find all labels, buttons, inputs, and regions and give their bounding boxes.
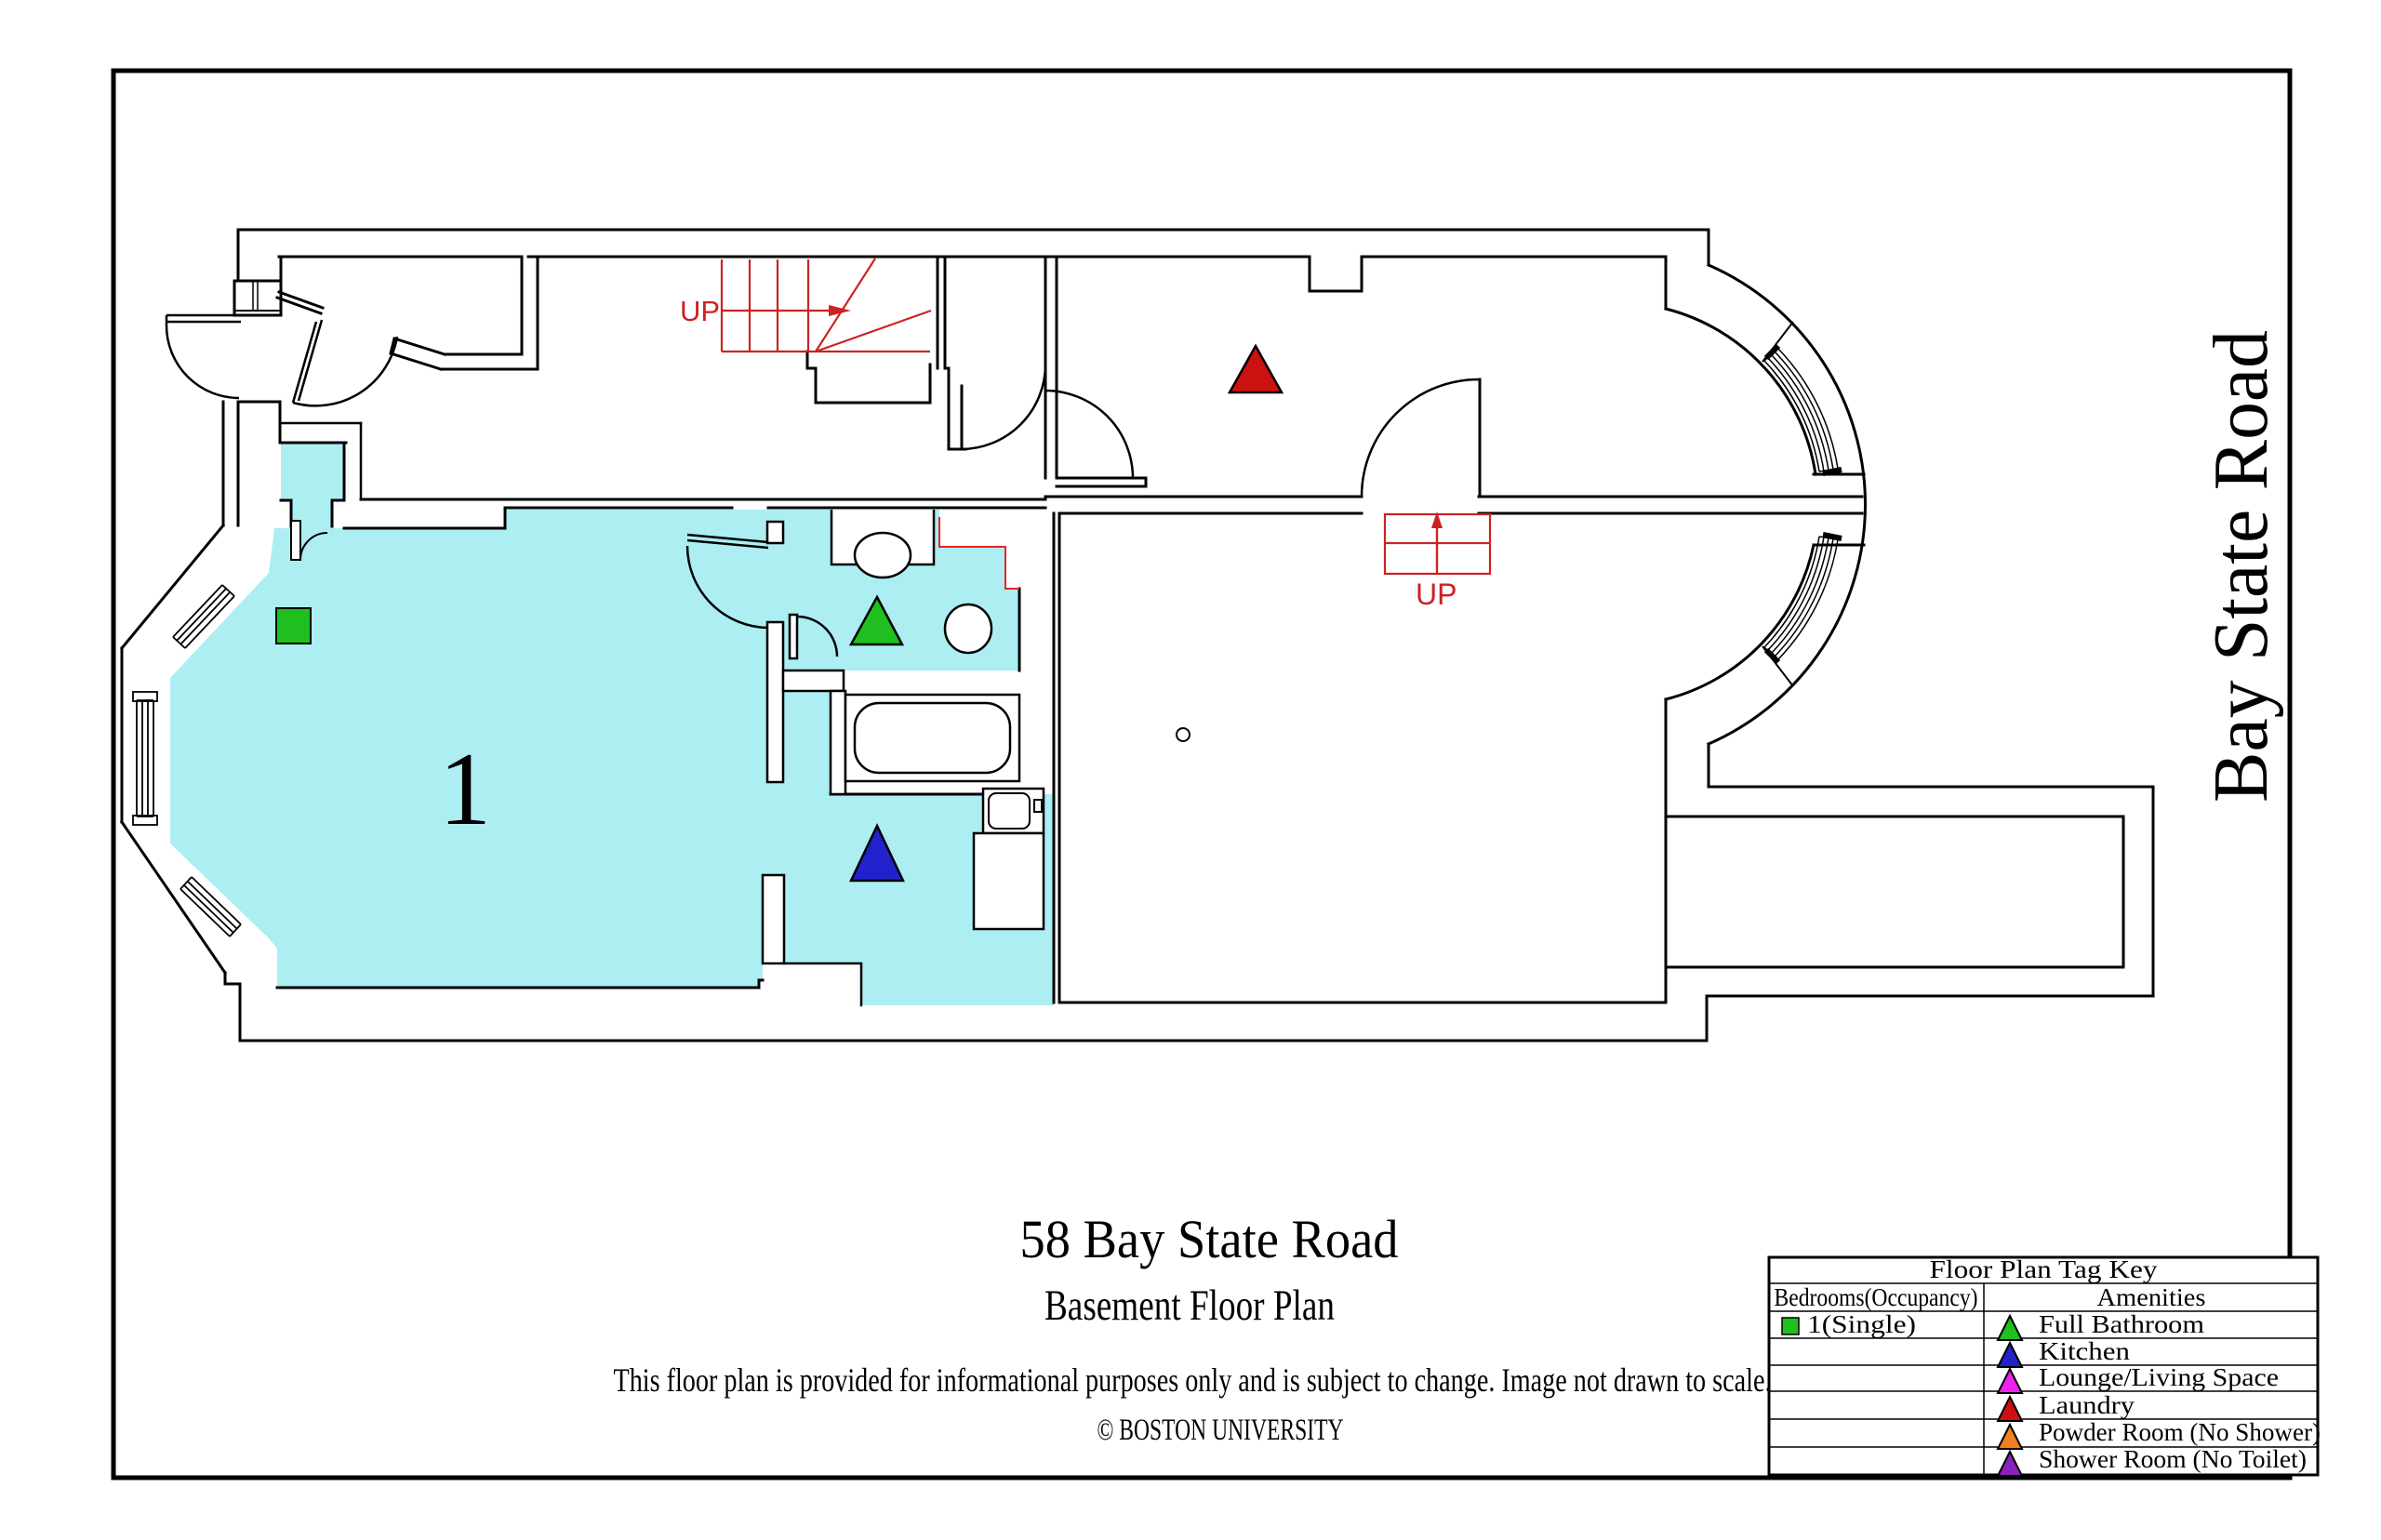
svg-text:Amenities: Amenities bbox=[2097, 1283, 2206, 1311]
svg-text:Lounge/Living Space: Lounge/Living Space bbox=[2039, 1363, 2279, 1391]
svg-text:UP: UP bbox=[1416, 577, 1457, 611]
svg-text:Full Bathroom: Full Bathroom bbox=[2039, 1310, 2204, 1338]
svg-text:1: 1 bbox=[439, 732, 491, 847]
svg-text:Laundry: Laundry bbox=[2039, 1391, 2135, 1419]
svg-text:58 Bay State Road: 58 Bay State Road bbox=[1020, 1209, 1399, 1269]
svg-text:1(Single): 1(Single) bbox=[1807, 1310, 1916, 1338]
svg-text:Bedrooms(Occupancy): Bedrooms(Occupancy) bbox=[1775, 1283, 1978, 1311]
svg-text:Kitchen: Kitchen bbox=[2039, 1337, 2131, 1365]
svg-text:Floor Plan Tag Key: Floor Plan Tag Key bbox=[1930, 1255, 2159, 1283]
svg-text:© BOSTON UNIVERSITY: © BOSTON UNIVERSITY bbox=[1097, 1414, 1344, 1447]
svg-text:This floor plan is provided fo: This floor plan is provided for informat… bbox=[614, 1361, 1772, 1399]
svg-text:Powder Room (No Shower): Powder Room (No Shower) bbox=[2039, 1418, 2321, 1446]
svg-text:UP: UP bbox=[680, 295, 720, 327]
svg-text:Bay State Road: Bay State Road bbox=[2198, 330, 2284, 803]
svg-text:Shower Room (No Toilet): Shower Room (No Toilet) bbox=[2039, 1445, 2307, 1473]
svg-text:Basement Floor Plan: Basement Floor Plan bbox=[1044, 1281, 1335, 1330]
